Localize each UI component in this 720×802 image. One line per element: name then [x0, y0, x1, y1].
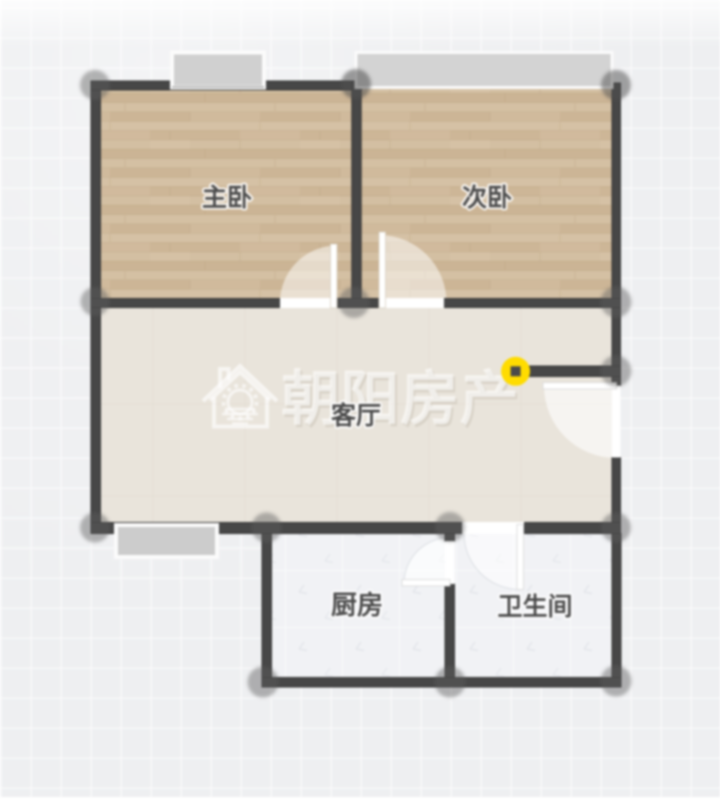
svg-text:厨房: 厨房 [331, 590, 383, 620]
svg-text:卫生间: 卫生间 [497, 593, 572, 621]
svg-text:朝阳房产: 朝阳房产 [281, 366, 519, 432]
svg-text:客厅: 客厅 [331, 401, 381, 430]
svg-text:主卧: 主卧 [202, 184, 252, 212]
svg-text:次卧: 次卧 [462, 184, 512, 212]
